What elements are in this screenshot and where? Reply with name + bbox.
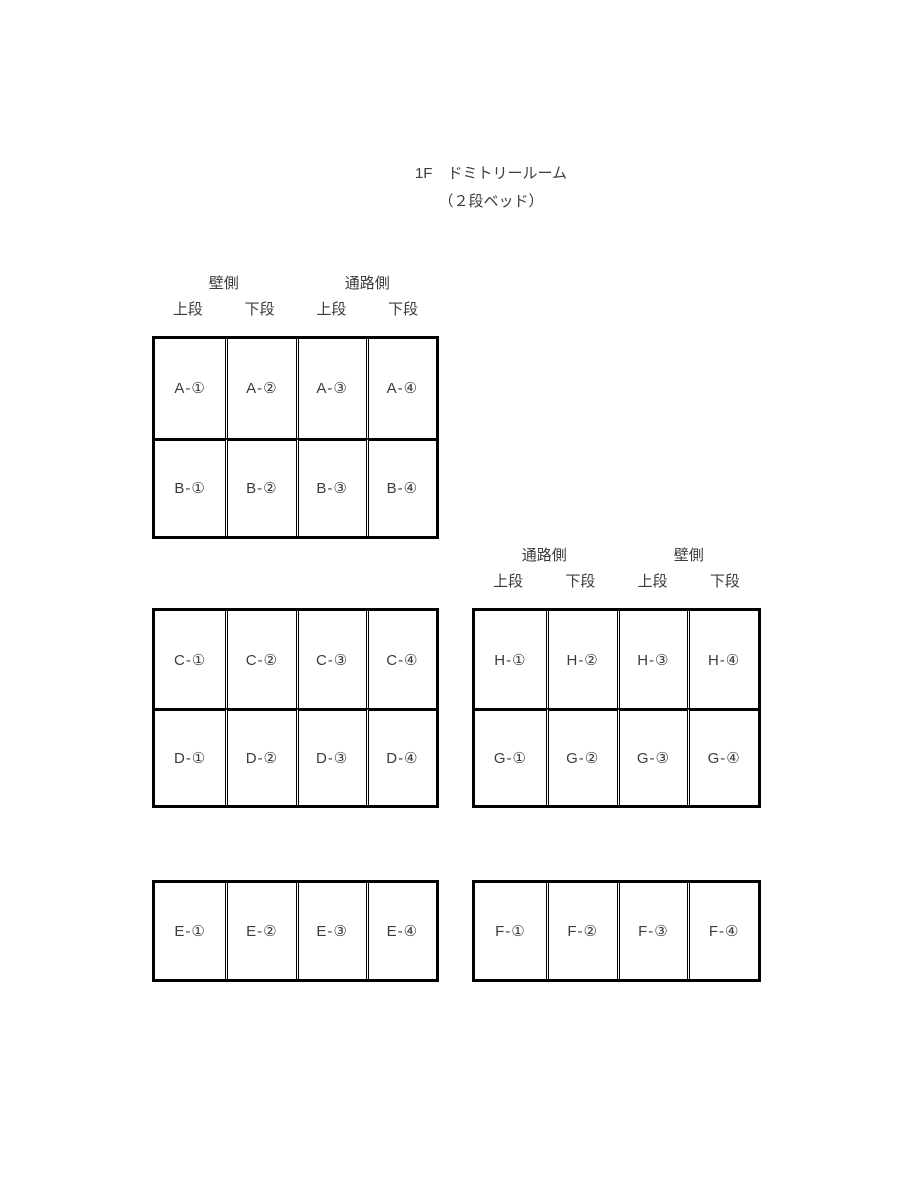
dormitory-layout-page: 1F ドミトリールーム （２段ベッド） 壁側 通路側 上段 下段 上段 下段 通… (0, 0, 900, 1200)
header-right-tier-row: 上段 下段 上段 下段 (472, 572, 761, 592)
bed-grid-f: F-① F-② F-③ F-④ (472, 880, 761, 982)
lower-tier-label: 下段 (224, 300, 296, 320)
bed-cell-f2: F-② (546, 883, 617, 979)
bed-cell-d1: D-① (155, 708, 225, 805)
bed-cell-b4: B-④ (366, 438, 436, 537)
bed-cell-a3: A-③ (296, 339, 366, 438)
page-title-line1: 1F ドミトリールーム (341, 160, 641, 188)
aisle-side-label: 通路側 (472, 546, 617, 566)
page-title: 1F ドミトリールーム （２段ベッド） (341, 160, 641, 216)
bed-grid-ab: A-① A-② A-③ A-④ B-① B-② B-③ B-④ (152, 336, 439, 539)
bed-cell-b1: B-① (155, 438, 225, 537)
bed-cell-c1: C-① (155, 611, 225, 708)
upper-tier-label: 上段 (152, 300, 224, 320)
bed-cell-c4: C-④ (366, 611, 436, 708)
bed-cell-e4: E-④ (366, 883, 436, 979)
lower-tier-label: 下段 (544, 572, 616, 592)
wall-side-label: 壁側 (617, 546, 762, 566)
upper-tier-label: 上段 (296, 300, 368, 320)
bed-cell-e2: E-② (225, 883, 295, 979)
bed-cell-e3: E-③ (296, 883, 366, 979)
lower-tier-label: 下段 (367, 300, 439, 320)
bed-grid-e: E-① E-② E-③ E-④ (152, 880, 439, 982)
bed-cell-h1: H-① (475, 611, 546, 708)
bed-cell-f1: F-① (475, 883, 546, 979)
bed-cell-a1: A-① (155, 339, 225, 438)
bed-cell-h2: H-② (546, 611, 617, 708)
bed-cell-c2: C-② (225, 611, 295, 708)
bed-cell-g4: G-④ (687, 708, 758, 805)
bed-cell-a2: A-② (225, 339, 295, 438)
bed-cell-h4: H-④ (687, 611, 758, 708)
wall-side-label: 壁側 (152, 274, 296, 294)
bed-cell-g1: G-① (475, 708, 546, 805)
header-right-group-row: 通路側 壁側 (472, 546, 761, 566)
bed-grid-cd: C-① C-② C-③ C-④ D-① D-② D-③ D-④ (152, 608, 439, 808)
upper-tier-label: 上段 (472, 572, 544, 592)
bed-cell-f3: F-③ (617, 883, 688, 979)
lower-tier-label: 下段 (689, 572, 761, 592)
header-left-group-row: 壁側 通路側 (152, 274, 439, 294)
bed-cell-f4: F-④ (687, 883, 758, 979)
bed-cell-b3: B-③ (296, 438, 366, 537)
header-right-block: 通路側 壁側 上段 下段 上段 下段 (472, 546, 761, 592)
aisle-side-label: 通路側 (296, 274, 440, 294)
header-left-tier-row: 上段 下段 上段 下段 (152, 300, 439, 320)
page-title-line2: （２段ベッド） (341, 188, 641, 216)
bed-cell-c3: C-③ (296, 611, 366, 708)
bed-cell-d4: D-④ (366, 708, 436, 805)
bed-cell-b2: B-② (225, 438, 295, 537)
bed-cell-g2: G-② (546, 708, 617, 805)
bed-cell-a4: A-④ (366, 339, 436, 438)
upper-tier-label: 上段 (617, 572, 689, 592)
header-left-block: 壁側 通路側 上段 下段 上段 下段 (152, 274, 439, 320)
bed-cell-d3: D-③ (296, 708, 366, 805)
bed-cell-h3: H-③ (617, 611, 688, 708)
bed-cell-g3: G-③ (617, 708, 688, 805)
bed-cell-d2: D-② (225, 708, 295, 805)
bed-cell-e1: E-① (155, 883, 225, 979)
bed-grid-hg: H-① H-② H-③ H-④ G-① G-② G-③ G-④ (472, 608, 761, 808)
